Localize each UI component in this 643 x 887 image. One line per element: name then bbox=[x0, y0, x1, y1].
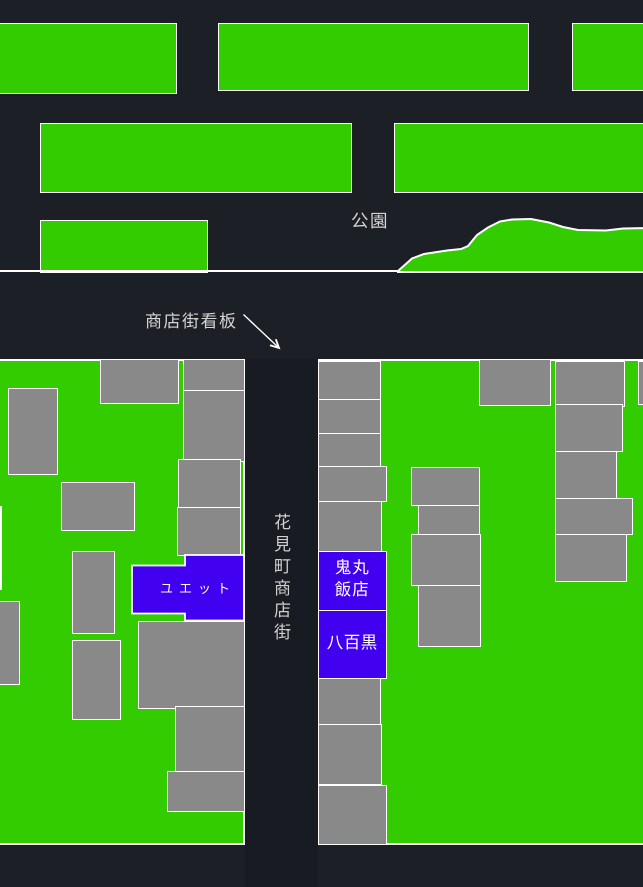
park-block bbox=[572, 23, 643, 92]
building bbox=[411, 467, 480, 506]
building bbox=[555, 451, 617, 500]
park-block bbox=[394, 123, 643, 193]
building bbox=[0, 601, 20, 685]
building bbox=[318, 361, 381, 400]
shop-onimaru-label-line1: 鬼丸 bbox=[335, 558, 370, 577]
building bbox=[61, 482, 136, 531]
shop-yaoguro-label: 八百黒 bbox=[318, 629, 387, 653]
map-canvas: 公園 商店街看板 花見町商店街 ユエット 鬼丸 飯店 八百黒 bbox=[0, 0, 643, 887]
building bbox=[177, 507, 242, 557]
building bbox=[72, 640, 121, 720]
building bbox=[167, 771, 245, 812]
building bbox=[100, 359, 179, 405]
signboard-label: 商店街看板 bbox=[145, 307, 238, 332]
building bbox=[318, 724, 382, 785]
park-block bbox=[218, 23, 529, 92]
shop-yuetto-label: ユエット bbox=[146, 578, 250, 597]
building bbox=[555, 404, 623, 452]
building bbox=[638, 361, 643, 406]
park-label: 公園 bbox=[347, 208, 393, 233]
street-name-label: 花見町商店街 bbox=[267, 513, 293, 645]
signboard-arrow bbox=[244, 315, 280, 349]
building bbox=[318, 466, 387, 502]
building bbox=[411, 534, 482, 586]
building bbox=[178, 459, 242, 508]
building bbox=[479, 359, 552, 407]
building bbox=[418, 585, 481, 647]
park-block bbox=[0, 23, 177, 94]
building bbox=[318, 785, 387, 845]
park-block bbox=[40, 123, 352, 193]
building bbox=[175, 706, 245, 774]
building bbox=[318, 675, 381, 725]
park-block bbox=[40, 220, 208, 273]
building bbox=[183, 390, 245, 462]
shop-onimaru-label-line2: 飯店 bbox=[335, 580, 370, 599]
building bbox=[555, 534, 627, 582]
building bbox=[138, 621, 245, 709]
shop-onimaru-label: 鬼丸 飯店 bbox=[318, 557, 387, 600]
building bbox=[8, 388, 58, 475]
building-edge-line bbox=[0, 506, 2, 590]
building bbox=[72, 551, 115, 634]
building bbox=[318, 433, 381, 467]
building bbox=[318, 399, 381, 435]
building bbox=[555, 498, 633, 535]
park-shore bbox=[398, 219, 643, 272]
building bbox=[318, 501, 382, 553]
building bbox=[418, 505, 480, 535]
building bbox=[183, 359, 245, 392]
building bbox=[555, 361, 625, 407]
map-boundary-line-top bbox=[0, 270, 643, 272]
